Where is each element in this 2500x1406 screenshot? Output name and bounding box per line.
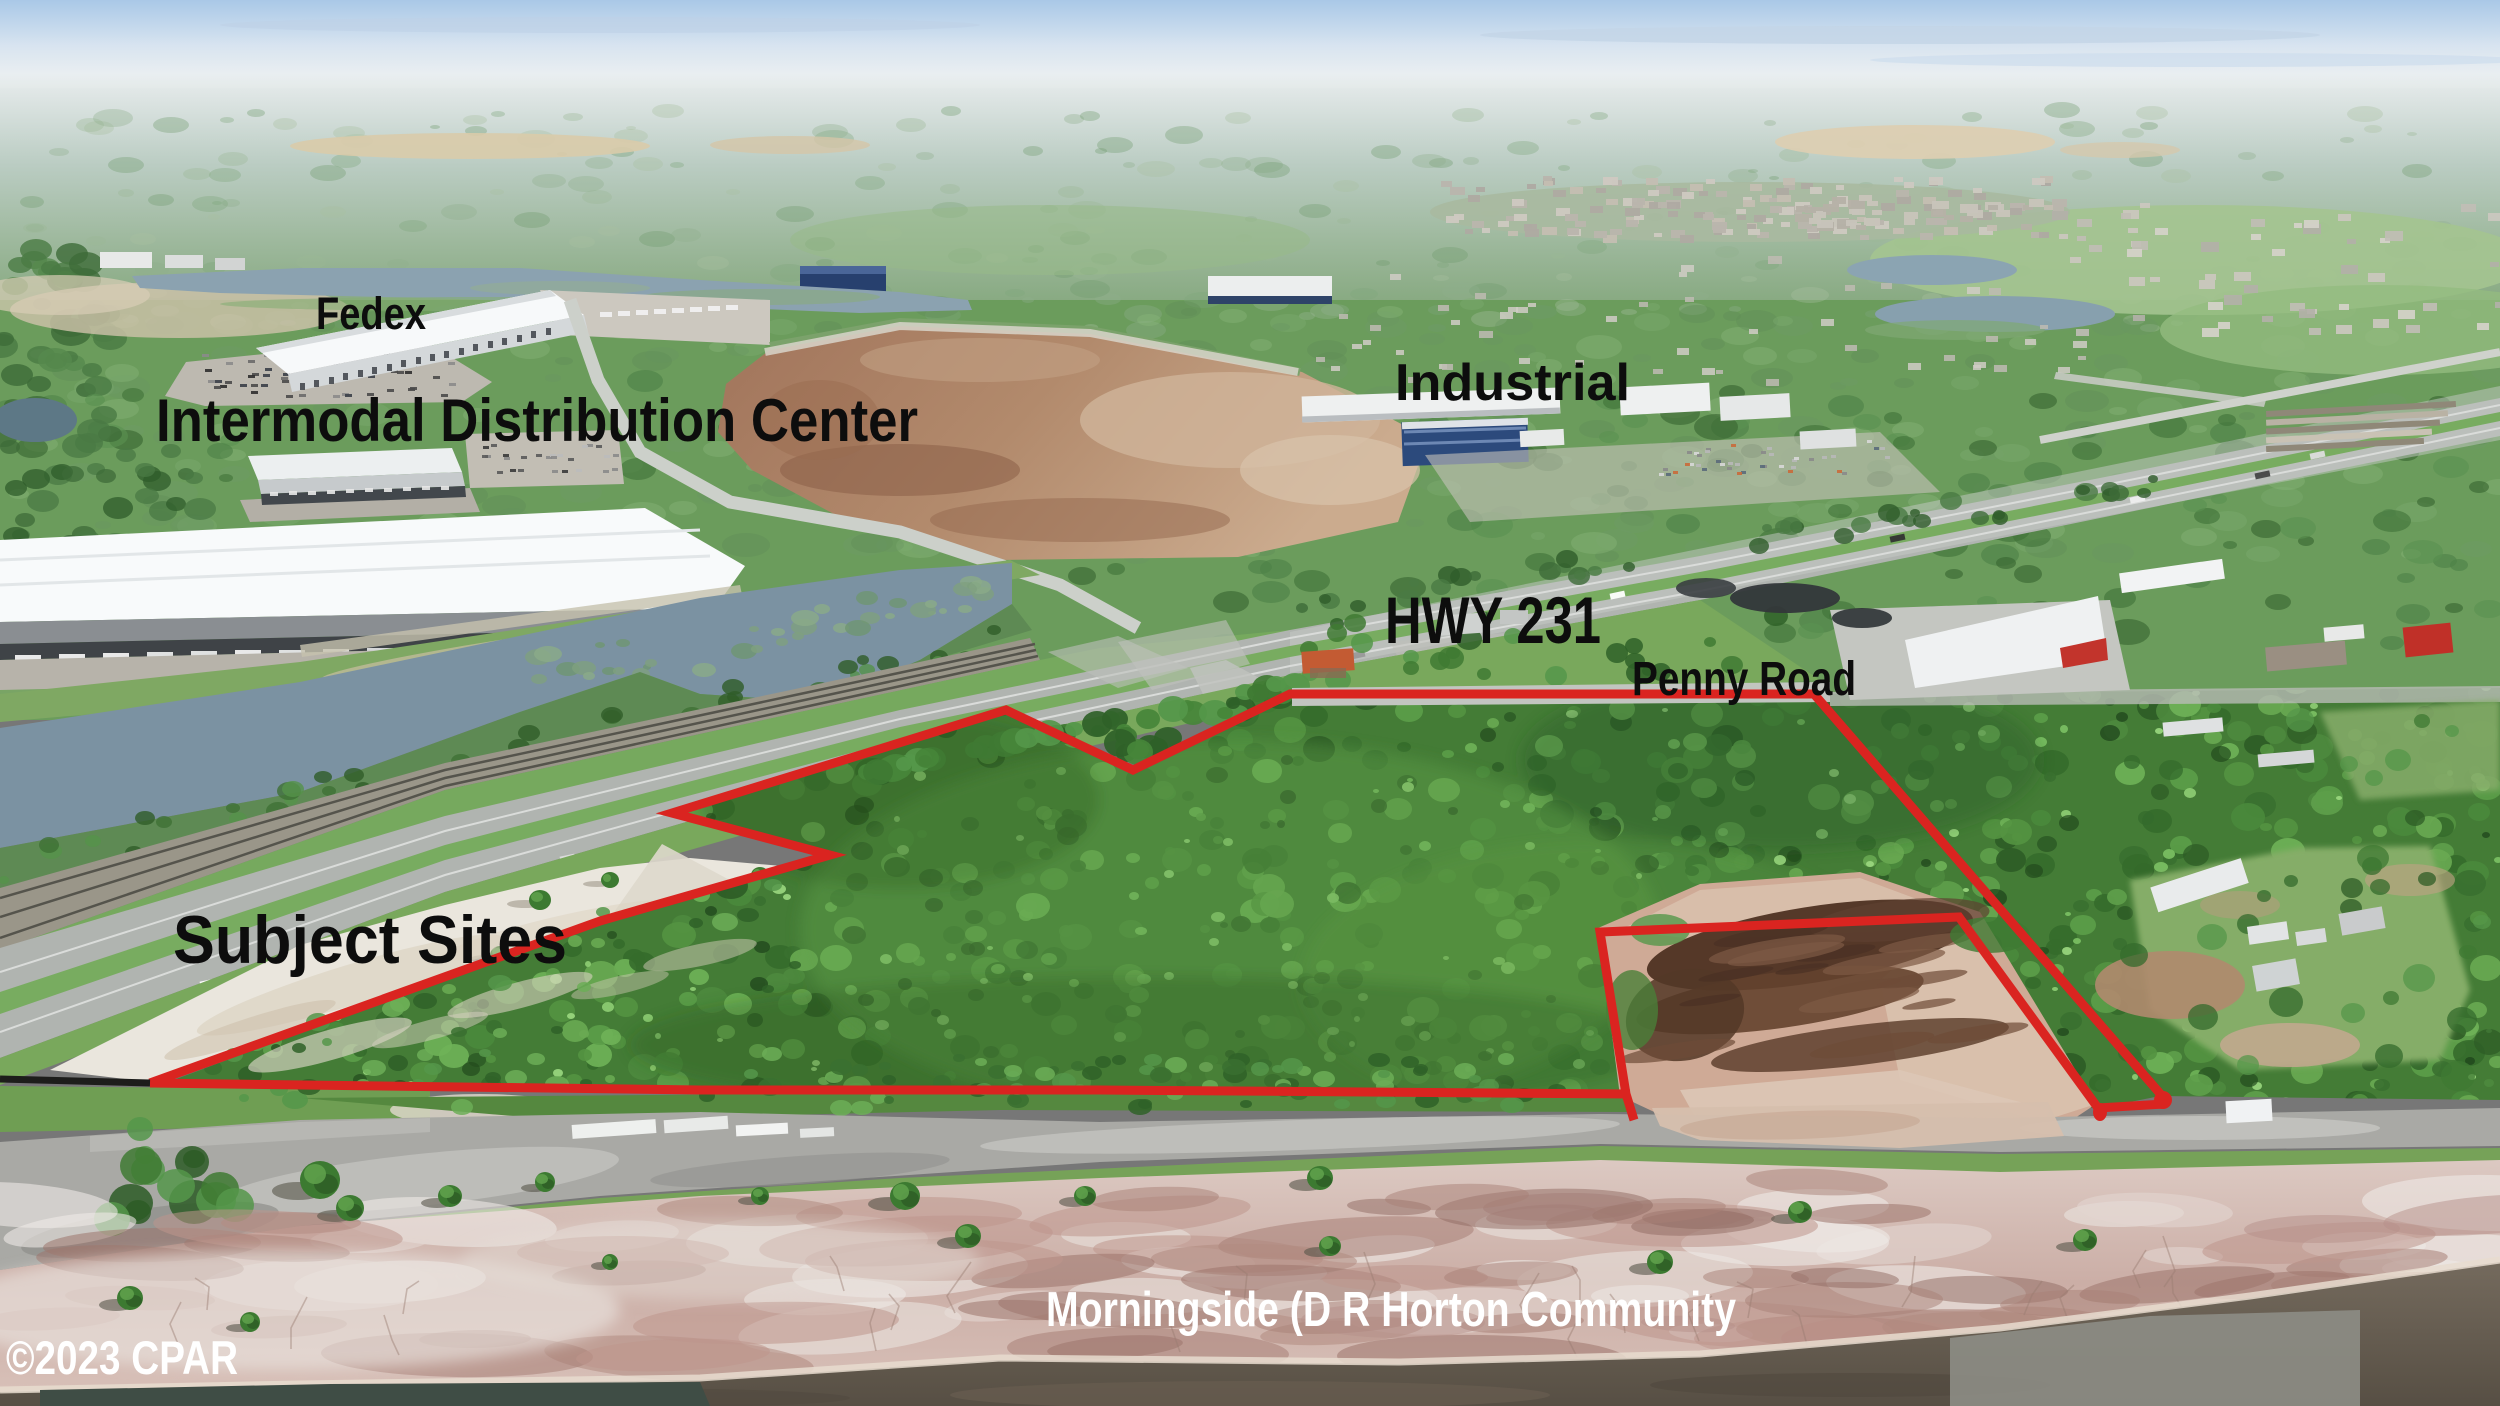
svg-text:Fedex: Fedex xyxy=(316,288,426,339)
svg-text:HWY 231: HWY 231 xyxy=(1385,583,1601,657)
svg-text:©2023 CPAR: ©2023 CPAR xyxy=(6,1331,238,1384)
svg-text:Penny Road: Penny Road xyxy=(1632,653,1856,706)
svg-text:Industrial: Industrial xyxy=(1395,354,1630,412)
svg-text:Intermodal Distribution Center: Intermodal Distribution Center xyxy=(156,387,918,454)
svg-text:Subject Sites: Subject Sites xyxy=(173,902,567,978)
svg-text:Morningside (D R Horton Commun: Morningside (D R Horton Community xyxy=(1046,1283,1736,1337)
